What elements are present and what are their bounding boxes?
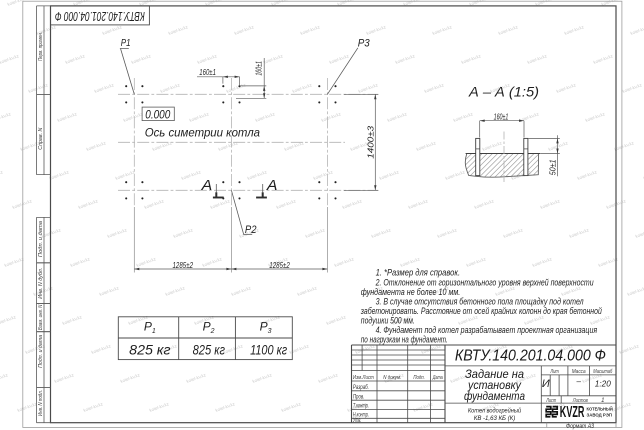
svg-text:2. Отклонение от горизонтальн: 2. Отклонение от горизонтального уровня … (375, 277, 594, 287)
svg-text:kotel-kv.kz: kotel-kv.kz (189, 111, 210, 123)
svg-text:Инв. N дубл.: Инв. N дубл. (38, 268, 44, 299)
svg-text:kotel-kv.kz: kotel-kv.kz (453, 111, 474, 123)
svg-text:kotel-kv.kz: kotel-kv.kz (83, 401, 104, 413)
svg-text:kotel-kv.kz: kotel-kv.kz (181, 169, 202, 181)
svg-text:Справ. N: Справ. N (38, 127, 44, 150)
svg-text:kotel-kv.kz: kotel-kv.kz (527, 53, 548, 65)
svg-text:kotel-kv.kz: kotel-kv.kz (223, 343, 244, 355)
svg-text:kotel-kv.kz: kotel-kv.kz (321, 111, 342, 123)
svg-text:kotel-kv.kz: kotel-kv.kz (123, 111, 144, 123)
svg-text:Утв.: Утв. (352, 418, 361, 424)
svg-text:825 кг: 825 кг (193, 342, 225, 358)
svg-text:Масштаб: Масштаб (593, 369, 613, 375)
svg-text:Подп. и дата: Подп. и дата (38, 221, 44, 257)
svg-text:kotel-kv.kz: kotel-kv.kz (313, 169, 334, 181)
svg-text:kotel-kv.kz: kotel-kv.kz (598, 256, 619, 268)
svg-text:N докум.: N докум. (383, 375, 401, 381)
svg-text:kotel-kv.kz: kotel-kv.kz (482, 140, 503, 152)
svg-text:160±1: 160±1 (199, 68, 216, 77)
svg-text:825 кг: 825 кг (129, 342, 170, 358)
svg-text:kotel-kv.kz: kotel-kv.kz (371, 227, 392, 239)
svg-text:КВ -1,63 КБ (К): КВ -1,63 КБ (К) (474, 415, 516, 422)
svg-text:kotel-kv.kz: kotel-kv.kz (424, 82, 445, 94)
svg-text:подушки 500 мм.: подушки 500 мм. (361, 316, 415, 326)
svg-text:Листов: Листов (572, 398, 588, 404)
svg-text:kotel-kv.kz: kotel-kv.kz (564, 24, 585, 36)
svg-text:Перв. примен.: Перв. примен. (38, 32, 44, 61)
svg-text:Подп.: Подп. (413, 375, 425, 381)
svg-text:kotel-kv.kz: kotel-kv.kz (234, 24, 255, 36)
svg-text:kotel-kv.kz: kotel-kv.kz (70, 256, 91, 268)
svg-text:Формат А3: Формат А3 (566, 423, 594, 430)
svg-text:Изм.Лист: Изм.Лист (353, 375, 374, 381)
svg-text:А – А (1:5): А – А (1:5) (468, 84, 539, 100)
svg-text:КОТЕЛЬНЫЙ: КОТЕЛЬНЫЙ (587, 405, 613, 412)
svg-text:1100 кг: 1100 кг (250, 342, 287, 358)
svg-text:kotel-kv.kz: kotel-kv.kz (300, 24, 321, 36)
svg-text:Т.контр.: Т.контр. (353, 404, 369, 410)
svg-text:kotel-kv.kz: kotel-kv.kz (94, 82, 115, 94)
svg-text:kotel-kv.kz: kotel-kv.kz (202, 256, 223, 268)
svg-text:kotel-kv.kz: kotel-kv.kz (263, 53, 284, 65)
svg-text:Р2: Р2 (245, 224, 257, 236)
svg-text:kotel-kv.kz: kotel-kv.kz (54, 372, 75, 384)
svg-text:kotel-kv.kz: kotel-kv.kz (627, 285, 644, 297)
svg-text:0.000: 0.000 (145, 108, 170, 122)
svg-text:Р2: Р2 (203, 319, 215, 334)
svg-text:kotel-kv.kz: kotel-kv.kz (120, 372, 141, 384)
svg-text:ЗАВОД РЭП: ЗАВОД РЭП (587, 412, 613, 417)
svg-text:kotel-kv.kz: kotel-kv.kz (635, 227, 644, 239)
svg-text:kotel-kv.kz: kotel-kv.kz (292, 82, 313, 94)
svg-text:kotel-kv.kz: kotel-kv.kz (168, 24, 189, 36)
svg-text:kotel-kv.kz: kotel-kv.kz (231, 285, 252, 297)
svg-text:Масса: Масса (572, 369, 586, 375)
svg-text:kotel-kv.kz: kotel-kv.kz (0, 169, 4, 181)
svg-text:kotel-kv.kz: kotel-kv.kz (466, 256, 487, 268)
svg-text:kotel-kv.kz: kotel-kv.kz (532, 256, 553, 268)
svg-text:kotel-kv.kz: kotel-kv.kz (400, 256, 421, 268)
svg-text:kotel-kv.kz: kotel-kv.kz (289, 343, 310, 355)
svg-text:kotel-kv.kz: kotel-kv.kz (329, 53, 350, 65)
svg-text:4. Фундамент под котел разраб: 4. Фундамент под котел разрабатывает про… (376, 325, 598, 335)
svg-text:Подп. и дата: Подп. и дата (38, 335, 44, 368)
svg-text:kotel-kv.kz: kotel-kv.kz (379, 169, 400, 181)
svg-text:kotel-kv.kz: kotel-kv.kz (65, 53, 86, 65)
svg-text:kotel-kv.kz: kotel-kv.kz (593, 53, 614, 65)
svg-text:kotel-kv.kz: kotel-kv.kz (342, 198, 363, 210)
svg-text:kotel-kv.kz: kotel-kv.kz (4, 256, 25, 268)
svg-text:160±1: 160±1 (494, 113, 509, 122)
svg-text:–: – (576, 377, 581, 386)
svg-text:Р1: Р1 (121, 38, 131, 49)
svg-text:kotel-kv.kz: kotel-kv.kz (136, 256, 157, 268)
svg-text:kotel-kv.kz: kotel-kv.kz (474, 198, 495, 210)
svg-text:kotel-kv.kz: kotel-kv.kz (498, 24, 519, 36)
svg-text:kotel-kv.kz: kotel-kv.kz (102, 24, 123, 36)
svg-text:kotel-kv.kz: kotel-kv.kz (144, 198, 165, 210)
svg-text:kotel-kv.kz: kotel-kv.kz (160, 82, 181, 94)
svg-text:kotel-kv.kz: kotel-kv.kz (86, 140, 107, 152)
svg-text:Р1: Р1 (144, 319, 156, 334)
svg-text:kotel-kv.kz: kotel-kv.kz (226, 82, 247, 94)
svg-text:kotel-kv.kz: kotel-kv.kz (577, 169, 598, 181)
svg-text:kotel-kv.kz: kotel-kv.kz (173, 227, 194, 239)
svg-text:А: А (201, 177, 213, 194)
svg-text:kotel-kv.kz: kotel-kv.kz (115, 169, 136, 181)
svg-text:kotel-kv.kz: kotel-kv.kz (197, 53, 218, 65)
svg-text:КВТУ.140.201.04.000 Ф: КВТУ.140.201.04.000 Ф (455, 347, 606, 364)
svg-text:Взам. инв. N: Взам. инв. N (38, 304, 44, 330)
svg-text:Ось симетрии котла: Ось симетрии котла (145, 126, 261, 140)
svg-text:И: И (542, 378, 550, 390)
svg-text:kotel-kv.kz: kotel-kv.kz (461, 53, 482, 65)
svg-text:1285±2: 1285±2 (269, 261, 290, 270)
svg-text:kotel-kv.kz: kotel-kv.kz (569, 227, 590, 239)
svg-text:1. *Размер для справок.: 1. *Размер для справок. (376, 268, 461, 278)
svg-text:фундамента: фундамента (464, 389, 525, 403)
svg-text:kotel-kv.kz: kotel-kv.kz (503, 227, 524, 239)
svg-text:kotel-kv.kz: kotel-kv.kz (437, 227, 458, 239)
svg-text:KVZR: KVZR (560, 404, 585, 421)
svg-text:kotel-kv.kz: kotel-kv.kz (165, 285, 186, 297)
svg-text:Пров.: Пров. (353, 394, 365, 400)
svg-text:kotel-kv.kz: kotel-kv.kz (62, 314, 83, 326)
svg-text:kotel-kv.kz: kotel-kv.kz (334, 256, 355, 268)
svg-text:kotel-kv.kz: kotel-kv.kz (0, 111, 12, 123)
svg-text:kotel-kv.kz: kotel-kv.kz (416, 140, 437, 152)
svg-text:КВТУ.140.201.04.000 Ф: КВТУ.140.201.04.000 Ф (55, 9, 145, 23)
svg-text:kotel-kv.kz: kotel-kv.kz (247, 169, 268, 181)
svg-text:kotel-kv.kz: kotel-kv.kz (107, 227, 128, 239)
svg-text:3. В случае отсутствия бетонн: 3. В случае отсутствия бетонного пола пл… (376, 297, 584, 307)
svg-text:kotel-kv.kz: kotel-kv.kz (78, 198, 99, 210)
svg-text:kotel-kv.kz: kotel-kv.kz (255, 111, 276, 123)
svg-text:kotel-kv.kz: kotel-kv.kz (297, 285, 318, 297)
svg-text:Разраб.: Разраб. (353, 385, 369, 391)
svg-text:kotel-kv.kz: kotel-kv.kz (215, 401, 236, 413)
svg-text:по нагрузкам на фундамент.: по нагрузкам на фундамент. (361, 335, 448, 345)
svg-text:kotel-kv.kz: kotel-kv.kz (0, 314, 17, 326)
svg-text:1285±2: 1285±2 (173, 261, 194, 270)
svg-text:kotel-kv.kz: kotel-kv.kz (57, 111, 78, 123)
svg-text:1: 1 (601, 398, 604, 404)
svg-text:kotel-kv.kz: kotel-kv.kz (49, 169, 70, 181)
svg-text:kotel-kv.kz: kotel-kv.kz (408, 198, 429, 210)
svg-text:1:20: 1:20 (595, 379, 611, 389)
svg-text:kotel-kv.kz: kotel-kv.kz (186, 372, 207, 384)
svg-text:1400±3: 1400±3 (366, 125, 375, 159)
svg-text:Дата: Дата (432, 375, 443, 381)
svg-text:kotel-kv.kz: kotel-kv.kz (395, 53, 416, 65)
svg-text:kotel-kv.kz: kotel-kv.kz (387, 111, 408, 123)
svg-text:160±1: 160±1 (254, 61, 263, 76)
svg-text:kotel-kv.kz: kotel-kv.kz (585, 111, 606, 123)
svg-text:kotel-kv.kz: kotel-kv.kz (99, 285, 120, 297)
svg-text:Лист: Лист (546, 398, 557, 404)
svg-text:kotel-kv.kz: kotel-kv.kz (0, 372, 9, 384)
svg-text:Р3: Р3 (358, 38, 371, 50)
svg-text:kotel-kv.kz: kotel-kv.kz (540, 198, 561, 210)
svg-text:kotel-kv.kz: kotel-kv.kz (252, 372, 273, 384)
svg-text:kotel-kv.kz: kotel-kv.kz (276, 198, 297, 210)
svg-text:kotel-kv.kz: kotel-kv.kz (28, 82, 49, 94)
svg-text:kotel-kv.kz: kotel-kv.kz (91, 343, 112, 355)
svg-text:kotel-kv.kz: kotel-kv.kz (556, 82, 577, 94)
svg-text:Котел водогрейный: Котел водогрейный (468, 407, 522, 415)
svg-text:kotel-kv.kz: kotel-kv.kz (630, 24, 644, 36)
svg-text:kotel-kv.kz: kotel-kv.kz (445, 169, 466, 181)
svg-text:kotel-kv.kz: kotel-kv.kz (358, 82, 379, 94)
svg-text:kotel-kv.kz: kotel-kv.kz (305, 227, 326, 239)
svg-text:kotel-kv.kz: kotel-kv.kz (131, 53, 152, 65)
svg-text:фундамента не более 10 мм.: фундамента не более 10 мм. (361, 287, 461, 297)
svg-text:kotel-kv.kz: kotel-kv.kz (614, 140, 635, 152)
svg-text:kotel-kv.kz: kotel-kv.kz (12, 198, 33, 210)
svg-text:kotel-kv.kz: kotel-kv.kz (17, 401, 38, 413)
svg-text:kotel-kv.kz: kotel-kv.kz (432, 24, 453, 36)
svg-text:kotel-kv.kz: kotel-kv.kz (281, 401, 302, 413)
svg-text:kotel-kv.kz: kotel-kv.kz (149, 401, 170, 413)
svg-text:kotel-kv.kz: kotel-kv.kz (210, 198, 231, 210)
svg-text:А: А (266, 177, 278, 194)
svg-text:50±1: 50±1 (548, 159, 557, 175)
svg-text:Инв. N подл.: Инв. N подл. (38, 390, 44, 416)
svg-text:kotel-kv.kz: kotel-kv.kz (326, 314, 347, 326)
svg-text:Лит: Лит (550, 369, 559, 375)
svg-text:kotel-kv.kz: kotel-kv.kz (318, 372, 339, 384)
svg-text:kotel-kv.kz: kotel-kv.kz (622, 82, 643, 94)
svg-text:kotel-kv.kz: kotel-kv.kz (366, 24, 387, 36)
svg-text:kotel-kv.kz: kotel-kv.kz (0, 53, 20, 65)
